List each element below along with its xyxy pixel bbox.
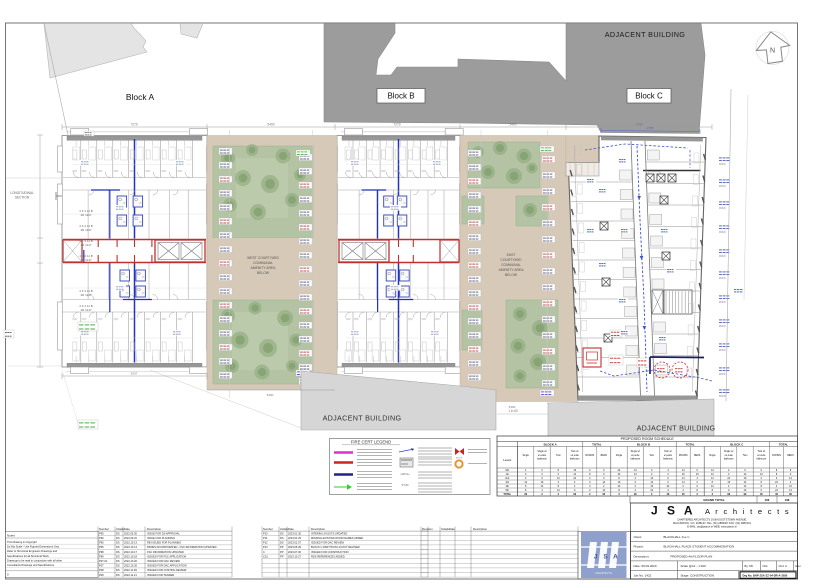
svg-text:bathroom: bathroom <box>630 458 640 461</box>
svg-text:BLACKHALL S.a.r.l.: BLACKHALL S.a.r.l. <box>664 535 691 539</box>
svg-text:Job No. 1422: Job No. 1422 <box>634 574 652 578</box>
svg-text:COMMUNAL: COMMUNAL <box>501 263 521 267</box>
svg-text:COMMUNAL: COMMUNAL <box>253 261 273 265</box>
svg-text:4R 1147: 4R 1147 <box>80 243 91 247</box>
svg-text:166: 166 <box>765 498 770 502</box>
svg-text:LONGITUDINAL: LONGITUDINAL <box>10 191 34 195</box>
svg-text:Description:: Description: <box>634 554 650 558</box>
svg-text:5400: 5400 <box>267 393 274 397</box>
svg-text:ISSUED FOR COSTING REVIEW: ISSUED FOR COSTING REVIEW <box>147 568 187 572</box>
svg-text:BLOCK A: BLOCK A <box>544 442 558 446</box>
svg-text:Description: Description <box>147 527 161 531</box>
svg-text:Date: 09.09.2020: Date: 09.09.2020 <box>634 564 657 568</box>
svg-text:en-suite: en-suite <box>757 454 766 457</box>
svg-text:198: 198 <box>785 498 790 502</box>
svg-text:5400: 5400 <box>267 123 274 127</box>
svg-text:P07: P07 <box>99 564 104 568</box>
svg-text:4R 1147: 4R 1147 <box>80 213 91 217</box>
svg-text:A r c h i t e c t s: A r c h i t e c t s <box>705 507 790 516</box>
svg-text:ROOMS: ROOMS <box>585 455 594 457</box>
svg-text:2nd: 2nd <box>505 477 510 480</box>
svg-text:BLOCK C PARTITION LAYOUT REVIS: BLOCK C PARTITION LAYOUT REVISED <box>311 545 360 549</box>
svg-text:bathroom: bathroom <box>663 458 673 461</box>
svg-text:P99: P99 <box>99 554 104 558</box>
svg-text:P07-01: P07-01 <box>99 559 108 563</box>
svg-text:4R 1147: 4R 1147 <box>80 258 91 262</box>
svg-text:BLACKROCK, CO. DUBLIN. TEL: (: BLACKROCK, CO. DUBLIN. TEL: (01) 2883307… <box>673 521 751 525</box>
svg-text:Revision: Revision <box>422 527 433 531</box>
svg-text:en-suite: en-suite <box>664 454 673 457</box>
svg-text:PP: PP <box>280 550 284 554</box>
svg-text:DS: DS <box>280 531 284 535</box>
svg-text:Twin w/: Twin w/ <box>571 451 579 453</box>
svg-text:2022.10.17: 2022.10.17 <box>124 550 138 554</box>
svg-text:bathroom: bathroom <box>537 458 547 461</box>
svg-text:J S A: J S A <box>651 504 696 518</box>
svg-text:2023.10.27: 2023.10.27 <box>288 554 302 558</box>
svg-text:2023.02.07: 2023.02.07 <box>288 541 302 545</box>
svg-text:E-MAIL: jsa@jsarch.ie WEB:: E-MAIL: jsa@jsarch.ie WEB: www.jsarch.ie <box>687 525 737 529</box>
svg-text:DS: DS <box>116 554 120 558</box>
svg-text:J: J <box>594 554 598 561</box>
svg-text:TOTAL: TOTAL <box>503 493 511 496</box>
svg-text:en-suite: en-suite <box>725 454 734 457</box>
svg-text:This Drawing is Copyright.: This Drawing is Copyright. <box>7 540 38 544</box>
svg-text:bathroom: bathroom <box>724 458 734 461</box>
svg-text:Twin w/: Twin w/ <box>664 451 672 453</box>
svg-text:RDS REFERENCES ADDED: RDS REFERENCES ADDED <box>311 554 345 558</box>
svg-text:Single: Single <box>523 455 530 457</box>
svg-text:ISSUED FOR TENDER: ISSUED FOR TENDER <box>147 573 174 577</box>
svg-text:P98: P98 <box>99 550 104 554</box>
svg-text:Do Not Scale - Use Figured Dim: Do Not Scale - Use Figured Dimensions On… <box>7 545 60 549</box>
svg-text:3537: 3537 <box>131 372 138 376</box>
svg-text:ROOMS: ROOMS <box>772 455 781 457</box>
svg-text:FSC INFORMATION UPDATED: FSC INFORMATION UPDATED <box>147 550 184 554</box>
svg-text:S: S <box>603 554 608 561</box>
svg-text:2022.06.30: 2022.06.30 <box>124 531 138 535</box>
svg-text:Single: Single <box>709 455 716 457</box>
svg-text:A: A <box>613 554 618 561</box>
svg-text:Twin w/: Twin w/ <box>757 451 765 453</box>
svg-text:7280: 7280 <box>635 123 642 127</box>
svg-text:COURTYARD: COURTYARD <box>500 258 522 262</box>
svg-text:BLOCK C: BLOCK C <box>730 442 744 446</box>
svg-text:5400: 5400 <box>509 405 516 409</box>
svg-text:RKDES INCORPORATED - FSC INFOR: RKDES INCORPORATED - FSC INFORMATION UPD… <box>147 545 217 549</box>
svg-text:P95: P95 <box>99 541 104 545</box>
svg-text:en-suite: en-suite <box>571 454 580 457</box>
svg-text:Twin: Twin <box>743 455 748 457</box>
svg-text:2022.10.14: 2022.10.14 <box>124 545 138 549</box>
svg-text:DS: DS <box>116 531 120 535</box>
svg-text:Twin: Twin <box>556 455 561 457</box>
svg-text:ADJACENT BUILDING: ADJACENT BUILDING <box>605 30 686 39</box>
svg-text:P12: P12 <box>263 541 268 545</box>
svg-text:By: DK: By: DK <box>745 564 754 568</box>
svg-text:FIRE CERT LEGEND: FIRE CERT LEGEND <box>351 440 391 445</box>
svg-text:Notes: Notes <box>7 534 15 538</box>
svg-text:ADJACENT BUILDING: ADJACENT BUILDING <box>637 424 716 433</box>
svg-text:2022.10.20: 2022.10.20 <box>124 559 138 563</box>
svg-text:bathroom: bathroom <box>570 458 580 461</box>
svg-text:Chd. A: Chd. A <box>779 564 788 568</box>
svg-text:BELOW: BELOW <box>257 271 270 275</box>
svg-text:4R 1147: 4R 1147 <box>80 228 91 232</box>
svg-text:Drg No. BHP-JSA-ZZ-04-DR-A-303: Drg No. BHP-JSA-ZZ-04-DR-A-3030 <box>743 574 788 578</box>
svg-text:Twin: Twin <box>649 455 654 457</box>
svg-text:P11: P11 <box>263 536 268 540</box>
svg-text:GR: GR <box>505 469 509 472</box>
svg-text:DS: DS <box>116 541 120 545</box>
svg-text:ISSUED FOR FSC APPLICATION: ISSUED FOR FSC APPLICATION <box>147 554 186 558</box>
svg-text:Description: Description <box>311 527 325 531</box>
svg-text:2023.01.25: 2023.01.25 <box>288 536 302 540</box>
svg-text:Levels: Levels <box>503 458 512 462</box>
svg-text:Number: Number <box>99 527 109 531</box>
svg-text:Single w/: Single w/ <box>631 451 641 453</box>
svg-text:BEDS: BEDS <box>601 455 608 457</box>
svg-text:1st: 1st <box>506 473 510 476</box>
svg-text:Block B: Block B <box>387 92 414 101</box>
svg-text:2022.10.26: 2022.10.26 <box>124 564 138 568</box>
svg-text:DS: DS <box>116 545 120 549</box>
svg-text:N: N <box>770 48 775 55</box>
svg-text:1 in 60: 1 in 60 <box>508 409 518 413</box>
svg-text:2023.01.30: 2023.01.30 <box>288 531 302 535</box>
svg-text:Specifications for all Structu: Specifications for all Structural Work. <box>7 554 50 558</box>
svg-text:DS: DS <box>116 559 120 563</box>
svg-text:ISSUE FOR DS APPROVAL: ISSUE FOR DS APPROVAL <box>147 531 180 535</box>
svg-text:ISSUED FOR DAC APPLICATION: ISSUED FOR DAC APPLICATION <box>147 564 187 568</box>
svg-text:7279: 7279 <box>130 123 137 127</box>
svg-text:EAST: EAST <box>507 253 516 257</box>
svg-text:RE-ISSUED FOR PLANNING: RE-ISSUED FOR PLANNING <box>147 541 181 545</box>
svg-text:Stage: CONSTRUCTION: Stage: CONSTRUCTION <box>681 574 715 578</box>
svg-text:DS: DS <box>280 536 284 540</box>
svg-text:WEST COURTYARD: WEST COURTYARD <box>247 256 279 260</box>
svg-text:4R 1147: 4R 1147 <box>80 308 91 312</box>
svg-text:SECTION: SECTION <box>15 196 30 200</box>
svg-text:ISSUE FOR PLANNING: ISSUE FOR PLANNING <box>147 536 175 540</box>
svg-text:2022.10.13: 2022.10.13 <box>124 541 138 545</box>
svg-text:BLACKHALL PLACE STUDENT ACCOMM: BLACKHALL PLACE STUDENT ACCOMMODATION <box>664 545 735 549</box>
svg-text:DS: DS <box>116 550 120 554</box>
svg-text:Chk: Chk <box>763 564 769 568</box>
svg-text:DS: DS <box>116 536 120 540</box>
svg-text:ANGLE: ANGLE <box>456 457 463 460</box>
svg-text:DS: DS <box>116 568 120 572</box>
svg-text:Client:: Client: <box>634 535 643 539</box>
svg-text:AMENITY AREA: AMENITY AREA <box>499 268 525 272</box>
svg-text:ADJACENT BUILDING: ADJACENT BUILDING <box>323 414 402 423</box>
svg-text:Project:: Project: <box>634 545 644 549</box>
svg-text:DS: DS <box>116 564 120 568</box>
svg-text:TOTAL: TOTAL <box>592 442 602 446</box>
svg-text:HATCH: HATCH <box>401 472 410 476</box>
svg-text:InitialsDate: InitialsDate <box>441 527 455 531</box>
svg-text:P96: P96 <box>99 545 104 549</box>
svg-text:1785: 1785 <box>647 126 654 130</box>
svg-text:P10: P10 <box>263 531 268 535</box>
svg-text:P90: P90 <box>99 531 104 535</box>
svg-text:DS: DS <box>116 573 120 577</box>
svg-text:PROPOSED 4th FLOOR PLAN: PROPOSED 4th FLOOR PLAN <box>671 554 713 558</box>
svg-text:Description: Description <box>473 527 487 531</box>
svg-text:7279: 7279 <box>393 123 400 127</box>
svg-text:2023.06.09: 2023.06.09 <box>288 545 302 549</box>
svg-text:P13: P13 <box>263 545 268 549</box>
svg-text:INTERIM LAYOUTS UPDATED: INTERIM LAYOUTS UPDATED <box>311 531 347 535</box>
svg-text:TOTAL: TOTAL <box>779 442 789 446</box>
svg-text:Scale @A1 - 1:100: Scale @A1 - 1:100 <box>681 564 707 568</box>
svg-text:Block C: Block C <box>635 92 663 101</box>
svg-text:2023.07.06: 2023.07.06 <box>288 550 302 554</box>
svg-text:BELOW: BELOW <box>505 273 518 277</box>
svg-text:BEDS: BEDS <box>694 455 701 457</box>
svg-text:MISSING EXISTING ROOM NAMES AD: MISSING EXISTING ROOM NAMES ADDED <box>311 536 363 540</box>
svg-text:P08: P08 <box>99 568 104 572</box>
svg-text:Drawings to be read in conjunc: Drawings to be read in conjunction with … <box>7 558 62 562</box>
svg-text:Single w/: Single w/ <box>537 451 547 453</box>
svg-text:en-suite: en-suite <box>538 454 547 457</box>
svg-text:PROPOSED ROOM SCHEDULE: PROPOSED ROOM SCHEDULE <box>621 437 675 441</box>
svg-text:4R 1147: 4R 1147 <box>80 293 91 297</box>
svg-text:GRAND TOTAL: GRAND TOTAL <box>703 498 725 502</box>
svg-text:Number: Number <box>263 527 273 531</box>
svg-text:2022.09.22: 2022.09.22 <box>124 536 138 540</box>
svg-text:CHARTERED ARCHITECTS 16 BAGGOT: CHARTERED ARCHITECTS 16 BAGGOTSTOWN AVEN… <box>677 518 747 522</box>
svg-text:2022.10.18: 2022.10.18 <box>124 554 138 558</box>
svg-text:bathroom: bathroom <box>756 458 766 461</box>
svg-text:P93: P93 <box>99 536 104 540</box>
svg-text:Consultants Drawings and Speci: Consultants Drawings and Specifications. <box>7 563 55 567</box>
svg-text:C: C <box>263 550 265 554</box>
svg-text:ROOMS: ROOMS <box>679 455 688 457</box>
svg-text:DS: DS <box>280 541 284 545</box>
svg-text:ISSUED FOR DAC REVIEW: ISSUED FOR DAC REVIEW <box>311 541 345 545</box>
svg-text:Block A: Block A <box>126 92 155 102</box>
svg-text:Rev:: Rev: <box>796 564 802 568</box>
svg-text:AMENITY AREA: AMENITY AREA <box>251 266 277 270</box>
svg-text:P09: P09 <box>99 573 104 577</box>
svg-text:2022.11.21: 2022.11.21 <box>124 573 137 577</box>
svg-text:STUD: STUD <box>401 483 408 487</box>
svg-text:ISSUED FOR DAC REVIEW: ISSUED FOR DAC REVIEW <box>147 559 181 563</box>
svg-text:PP: PP <box>280 545 284 549</box>
svg-text:2022.11.09: 2022.11.09 <box>124 568 137 572</box>
svg-text:Single: Single <box>616 455 623 457</box>
svg-text:ISSUED FOR CONSTRUCTION: ISSUED FOR CONSTRUCTION <box>311 550 349 554</box>
svg-text:en-suite: en-suite <box>631 454 640 457</box>
svg-text:5400: 5400 <box>509 123 516 127</box>
svg-text:PP: PP <box>280 554 284 558</box>
svg-text:TOTAL: TOTAL <box>686 442 696 446</box>
svg-text:C01: C01 <box>263 554 268 558</box>
svg-text:Single w/: Single w/ <box>724 451 734 453</box>
svg-text:BEDS: BEDS <box>787 455 794 457</box>
svg-text:BLOCK B: BLOCK B <box>637 442 650 446</box>
svg-text:Refer to Structural Engineers: Refer to Structural Engineers Drawings a… <box>7 549 58 553</box>
svg-text:ARCHITECTS: ARCHITECTS <box>595 571 612 575</box>
